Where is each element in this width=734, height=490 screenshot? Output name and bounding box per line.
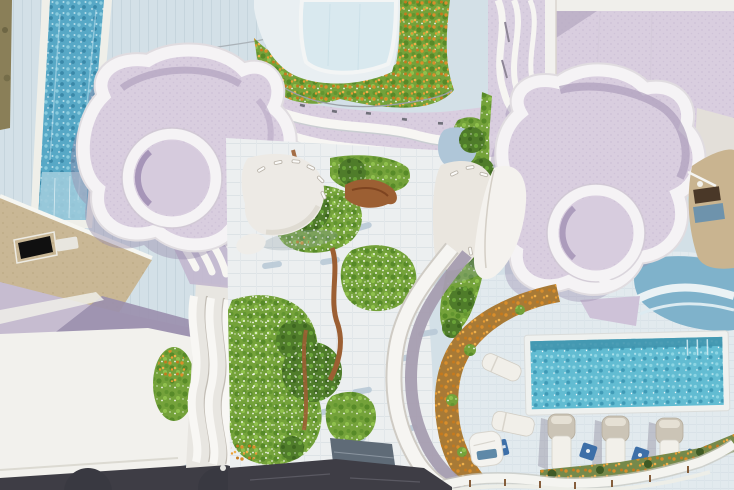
border-planting-strip — [0, 0, 12, 130]
border-shrub — [4, 75, 11, 82]
shrub — [596, 466, 604, 474]
band-shrub — [464, 344, 476, 356]
band-shrub — [457, 447, 467, 457]
band-shrub — [446, 394, 458, 406]
render-canvas — [0, 0, 734, 490]
planter-pot — [220, 465, 226, 471]
main-pool — [524, 331, 730, 416]
border-shrub — [2, 27, 8, 33]
flower-cluster — [230, 442, 258, 462]
aerial-render — [0, 0, 734, 490]
sun-lounger — [538, 414, 575, 470]
roof-planter-flowers — [158, 350, 186, 382]
rooftop-pool — [301, 0, 396, 73]
balcony-fin — [192, 296, 198, 462]
band-shrub — [515, 305, 525, 315]
bar-stool — [697, 181, 703, 187]
pool-kiosk — [468, 430, 504, 468]
shrub — [644, 460, 652, 468]
balcony-fin — [209, 298, 215, 464]
